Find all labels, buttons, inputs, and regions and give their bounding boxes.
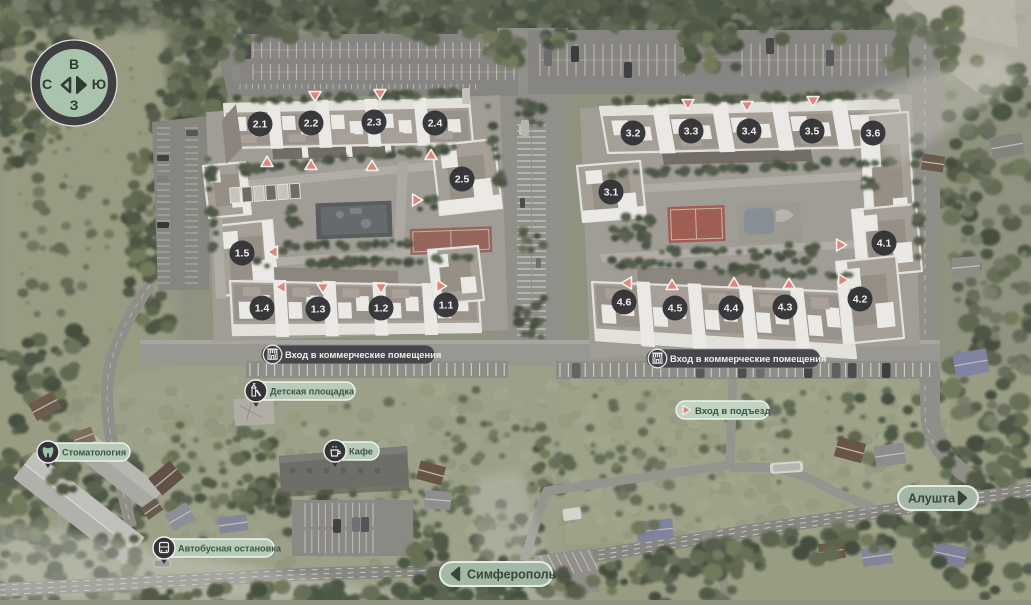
svg-text:С: С: [42, 76, 52, 92]
svg-text:3.6: 3.6: [866, 128, 881, 140]
svg-text:1.4: 1.4: [255, 303, 270, 315]
svg-text:1.3: 1.3: [311, 304, 326, 316]
svg-text:4.6: 4.6: [617, 297, 632, 309]
svg-text:4.1: 4.1: [877, 238, 892, 250]
svg-text:3.2: 3.2: [626, 128, 641, 140]
svg-text:2.5: 2.5: [455, 174, 470, 186]
svg-text:4.5: 4.5: [668, 303, 683, 315]
svg-text:В: В: [69, 56, 79, 72]
svg-text:4.2: 4.2: [853, 294, 868, 306]
svg-text:2.2: 2.2: [304, 118, 319, 130]
svg-text:3.3: 3.3: [684, 126, 699, 138]
svg-text:3.4: 3.4: [742, 126, 757, 138]
svg-text:Вход в подъезд: Вход в подъезд: [695, 406, 771, 417]
svg-text:3.1: 3.1: [604, 187, 619, 199]
svg-text:1.1: 1.1: [439, 300, 454, 312]
svg-text:Вход в коммерческие помещения: Вход в коммерческие помещения: [670, 353, 826, 364]
svg-text:1.5: 1.5: [235, 248, 250, 260]
svg-text:4.4: 4.4: [724, 303, 739, 315]
svg-text:2.1: 2.1: [253, 119, 268, 131]
svg-text:2.4: 2.4: [428, 118, 443, 130]
svg-text:4.3: 4.3: [778, 302, 793, 314]
svg-text:1.2: 1.2: [374, 303, 389, 315]
svg-text:Стоматология: Стоматология: [62, 448, 126, 458]
svg-text:Вход в коммерческие помещения: Вход в коммерческие помещения: [285, 349, 441, 360]
svg-text:Ю: Ю: [92, 76, 106, 92]
svg-text:2.3: 2.3: [367, 117, 382, 129]
svg-text:Детская площадка: Детская площадка: [270, 387, 355, 397]
svg-text:З: З: [70, 97, 79, 113]
svg-text:3.5: 3.5: [805, 126, 820, 138]
svg-text:Алушта: Алушта: [908, 492, 956, 506]
svg-text:Автобусная остановка: Автобусная остановка: [178, 544, 282, 554]
svg-text:Симферополь: Симферополь: [467, 568, 557, 582]
svg-text:Кафе: Кафе: [349, 447, 373, 457]
